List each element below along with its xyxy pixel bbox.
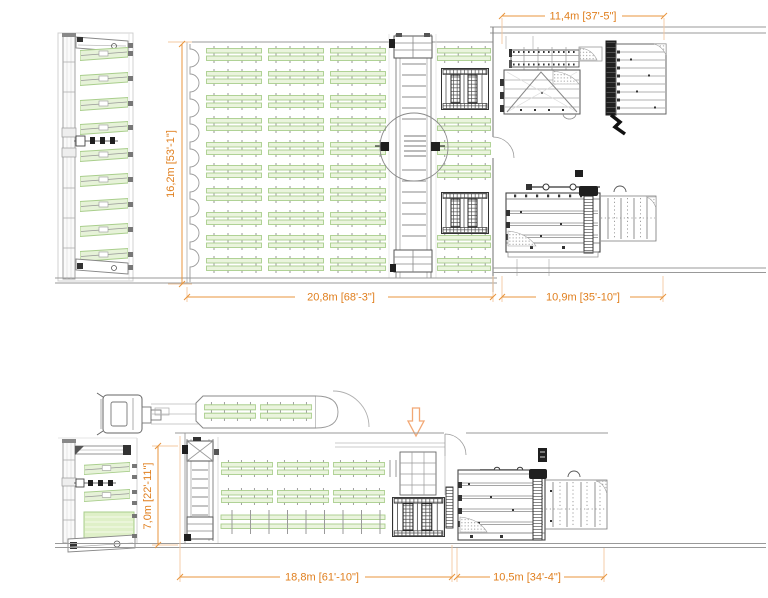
tray-shuttle	[74, 479, 116, 487]
dimension-machine-area-top: 10,9m [35'-10"]	[499, 276, 666, 304]
tray-rows	[221, 460, 396, 534]
lane-conveyor-machine-bottom	[545, 471, 607, 529]
grow-hall-plan-bottom	[55, 433, 766, 548]
grow-trays	[80, 48, 128, 262]
grow-hall-plan-top	[187, 33, 493, 284]
processing-area-plan-top	[490, 27, 766, 292]
dimension-hall-width-top: 20,8m [68'-3"]	[184, 276, 496, 304]
transplanter-machine	[442, 193, 489, 234]
slat-conveyor	[446, 487, 453, 528]
truck-mirrors	[97, 393, 103, 435]
door-swing-arc	[445, 434, 466, 456]
dimension-hall-depth-bottom: 7,0m [22'-11"]	[142, 443, 178, 548]
rack-mast	[62, 33, 76, 279]
washing-machine-bottom	[458, 448, 547, 540]
dimension-machine-area-bottom: 10,5m [34'-4"]	[454, 548, 607, 584]
dim-label: 11,4m [37'-5"]	[550, 11, 617, 23]
scalloped-edge	[190, 44, 199, 282]
dim-label: 10,5m [34'-4"]	[493, 572, 561, 584]
grow-bed-block	[84, 512, 134, 538]
dim-label: 7,0m [22'-11"]	[142, 463, 154, 530]
dim-label: 18,8m [61'-10"]	[285, 572, 359, 584]
door-swing-arc	[493, 137, 514, 158]
facility-layout-drawing: 11,4m [37'-5"] 16,2m [53'-1"] 20,8m [68'…	[0, 0, 768, 598]
grow-rack-elevation-bottom	[58, 438, 137, 552]
delivery-truck-plan	[97, 391, 369, 435]
grow-tray	[84, 462, 130, 474]
work-table	[400, 452, 436, 495]
trailer-body	[196, 396, 316, 428]
corner-unit	[579, 47, 602, 61]
hook-bracket	[611, 115, 625, 134]
dimension-hall-depth-top: 16,2m [53'-1"]	[165, 41, 192, 287]
lane-conveyor-machine-top	[616, 44, 666, 114]
washing-machine-top	[506, 170, 656, 276]
loading-beam	[75, 445, 131, 455]
bottom-hopper	[76, 259, 128, 274]
tray-lift-conveyor-bottom	[182, 437, 219, 543]
grow-tray	[84, 489, 130, 501]
rack-mast	[62, 439, 76, 543]
dim-label: 10,9m [35'-10"]	[546, 292, 620, 304]
transplanter-machine	[393, 497, 445, 536]
seeding-conveyor	[509, 47, 579, 70]
tray-lift-conveyor-top	[375, 33, 448, 278]
grow-rack-elevation-top	[58, 33, 133, 281]
dim-label: 16,2m [53'-1"]	[165, 130, 177, 198]
flow-down-arrow-icon	[408, 408, 424, 436]
loading-door-arc	[333, 391, 369, 427]
transplanter-machine	[442, 69, 489, 110]
tray-shuttle	[74, 136, 118, 146]
trailer-tail	[316, 396, 338, 428]
stacker-machine	[500, 70, 580, 119]
dim-label: 20,8m [68'-3"]	[307, 292, 375, 304]
